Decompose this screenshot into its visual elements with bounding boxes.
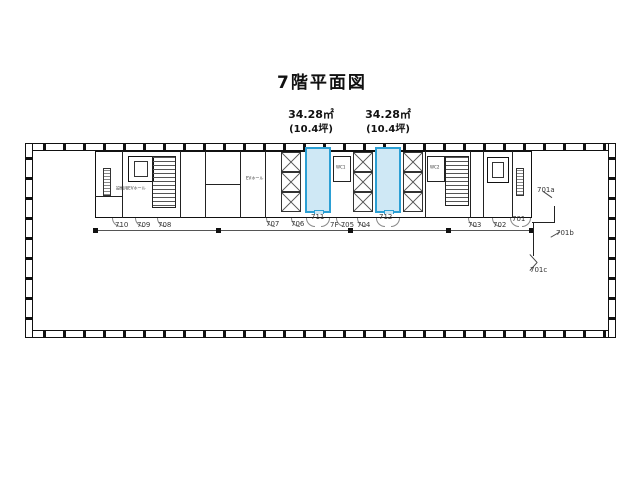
wall-partition [425,151,426,218]
wc1-label: WC1 [336,166,345,171]
elevator-shaft [403,172,423,192]
facade-wall-left [25,143,33,338]
room-number-701c: 701c [530,266,547,274]
elevator-shaft [353,172,373,192]
elevator-shaft [353,192,373,212]
room-number-706: 706 [291,220,304,228]
page-title: 7階平面図 [277,68,367,93]
room-number-701: 701 [512,215,525,223]
louver-panel [103,168,111,196]
floorplan-canvas: 7階平面図 34.28㎡ (10.4坪) 34.28㎡ (10.4坪) 設備用E… [0,0,640,480]
stairwell-east [445,156,469,206]
elevator-hall-label: EVホール [246,176,263,181]
elevator-shaft [281,192,301,212]
wall-partition [180,151,181,218]
wall-partition [512,151,513,218]
unit-712-area-tsubo: (10.4坪) [360,120,416,135]
structural-column [93,228,98,233]
structural-column [446,228,451,233]
east-elevator-car [492,162,504,178]
wall-partition [240,151,241,218]
stairwell-west [152,156,176,208]
wall-partition [95,196,122,197]
room-number-702: 702 [493,221,506,229]
room-number-705: 7F 705 [330,221,354,229]
elevator-shaft [403,192,423,212]
facade-wall-bottom [25,330,616,338]
annex-wall [554,206,555,223]
room-number-711: 711 [311,213,324,221]
corridor-wall [95,230,532,231]
unit-711-highlight [305,147,331,213]
service-elevator-label: 設備用EVホール [116,186,146,191]
room-number-709: 709 [137,221,150,229]
wall-partition [470,151,471,218]
wall-partition [483,151,484,218]
louver-panel [516,168,524,196]
unit-712-highlight [375,147,401,213]
room-number-710: 710 [115,221,128,229]
room-number-703: 703 [468,221,481,229]
room-number-701a: 701a [537,186,555,194]
elevator-shaft [403,152,423,172]
room-number-701b: 701b [556,229,574,237]
service-elevator-car [134,161,148,177]
elevator-shaft [353,152,373,172]
unit-711-area-tsubo: (10.4坪) [283,120,339,135]
facade-wall-right [608,143,616,338]
elevator-shaft [281,172,301,192]
wc2-label: WC2 [430,166,439,171]
annex-wall [533,222,534,256]
room-number-707: 707 [266,220,279,228]
wall-partition [205,184,240,185]
wall-partition [122,151,123,218]
room-number-708: 708 [158,221,171,229]
wall-partition [265,151,266,218]
annex-wall [532,222,554,223]
room-number-704: 704 [357,221,370,229]
elevator-shaft [281,152,301,172]
room-number-712: 712 [379,213,392,221]
structural-column [216,228,221,233]
